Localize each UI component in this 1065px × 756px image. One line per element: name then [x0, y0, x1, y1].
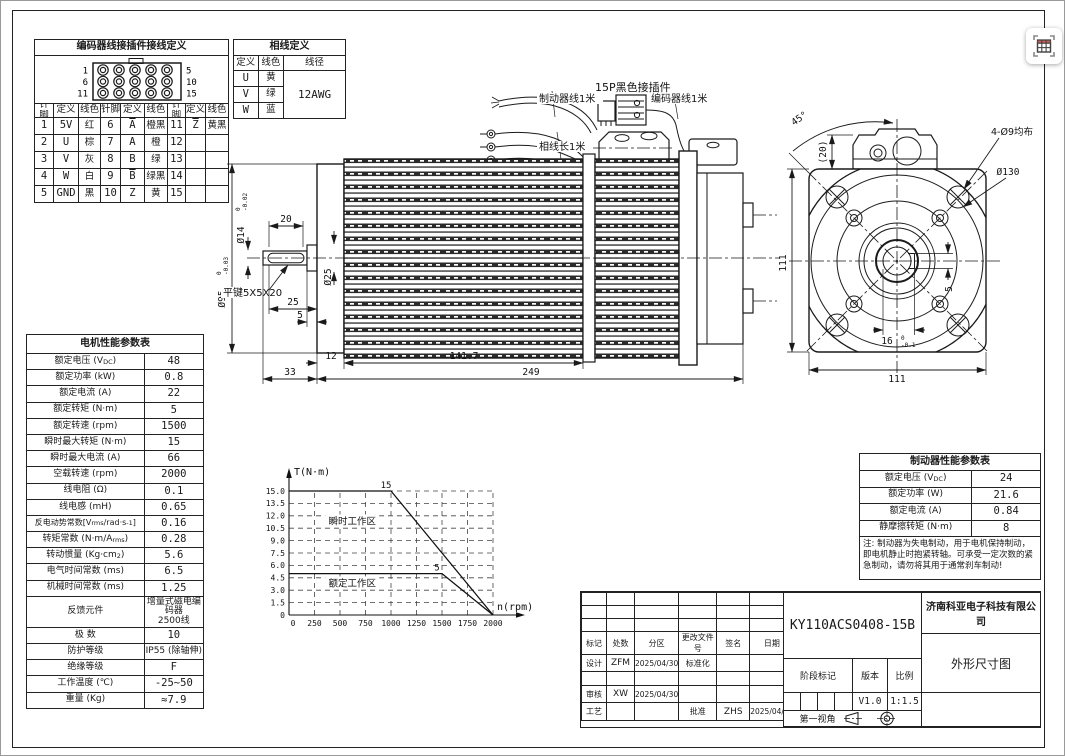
param-value: 8: [972, 521, 1040, 537]
pin-cell: 10: [101, 186, 120, 202]
pin-cell: Z: [121, 186, 144, 202]
param-value: 22: [145, 386, 203, 401]
pin-cell: 5: [35, 186, 53, 202]
brake-performance-table: 制动器性能参数表 额定电压 (VDC) 24 额定功率 (W) 21.6 额定电…: [859, 453, 1041, 580]
param-value: ≈7.9: [145, 693, 203, 708]
param-value: 1.25: [145, 581, 203, 596]
svg-text:15: 15: [186, 90, 197, 100]
pin-cell: 3: [35, 152, 53, 168]
param-label: 反馈元件: [27, 597, 144, 627]
pin-cell: 绿黑: [145, 169, 167, 185]
scale-label: 比例: [887, 658, 922, 693]
pin-cell: 9: [101, 169, 120, 185]
stage-cell: [783, 692, 801, 711]
param-label: 线电阻 (Ω): [27, 484, 144, 499]
param-label: 机械时间常数 (ms): [27, 581, 144, 596]
rev-col-header: 标记: [582, 632, 607, 655]
pin-cell: 黄: [145, 186, 167, 202]
pin-cell: 1: [35, 118, 53, 134]
projection-row: 第一视角: [783, 710, 922, 727]
design-date: 2025/04/30: [635, 655, 679, 672]
encoder-wire-label: 编码器线1米: [651, 92, 707, 105]
svg-text:11: 11: [77, 90, 88, 100]
col-header: 线径: [284, 56, 345, 70]
pin-cell: GND: [54, 186, 78, 202]
svg-text:0: 0: [901, 335, 905, 342]
col-header: 线色: [79, 104, 100, 117]
svg-text:0: 0: [235, 207, 242, 211]
phase-table-title: 相线定义: [234, 40, 345, 55]
param-label: 瞬时最大电流 (A): [27, 451, 144, 466]
svg-text:n(rpm): n(rpm): [497, 602, 533, 613]
svg-text:5: 5: [944, 286, 955, 292]
svg-text:1500: 1500: [432, 619, 451, 628]
empty-cell: [921, 692, 1041, 727]
brake-wire-label: 制动器线1米: [539, 92, 595, 105]
svg-text:-0.03: -0.03: [223, 257, 230, 275]
rev-col-header: 分区: [635, 632, 679, 655]
param-label: 绝缘等级: [27, 660, 144, 675]
rev-col-header: 签名: [717, 632, 750, 655]
svg-text:45°: 45°: [789, 110, 809, 129]
param-value: 0.16: [145, 516, 203, 531]
pin-cell: U: [54, 135, 78, 151]
pin-cell: 黑: [79, 186, 100, 202]
motor-body: [247, 132, 779, 365]
pin-cell: 12: [168, 135, 185, 151]
svg-text:33: 33: [284, 367, 295, 378]
drawing-title: 外形尺寸图: [921, 633, 1041, 693]
pin-cell: [186, 186, 205, 202]
svg-text:13.5: 13.5: [266, 499, 285, 508]
svg-text:5: 5: [186, 67, 191, 77]
svg-text:16: 16: [881, 336, 893, 347]
pin-cell: 绿: [145, 152, 167, 168]
param-label: 额定功率 (kW): [27, 370, 144, 385]
approve-label: 批准: [679, 703, 717, 721]
svg-text:6.0: 6.0: [271, 561, 286, 570]
param-label: 重量 (Kg): [27, 693, 144, 708]
svg-text:15.0: 15.0: [266, 487, 285, 496]
col-header: 线色: [259, 56, 284, 70]
param-label: 防护等级: [27, 644, 144, 659]
pin-cell: 7: [101, 135, 120, 151]
audit-date: 2025/04/30: [635, 686, 679, 703]
param-value: IP55 (除轴伸): [145, 644, 203, 659]
svg-text:750: 750: [358, 619, 373, 628]
col-header: 定义: [121, 104, 144, 117]
motor-performance-table: 电机性能参数表 额定电压 (VDC) 48 额定功率 (kW) 0.8 额定电流…: [26, 334, 204, 709]
table-capture-icon: [1032, 34, 1056, 58]
param-value: 0.1: [145, 484, 203, 499]
param-label: 工作温度 (℃): [27, 676, 144, 691]
audit-sign: XW: [607, 686, 635, 703]
rev-col-header: 更改文件号: [679, 632, 717, 655]
param-label: 空载转速 (rpm): [27, 467, 144, 482]
param-label: 线电感 (mH): [27, 500, 144, 515]
stage-cell: [834, 692, 853, 711]
pin-cell: 4: [35, 169, 53, 185]
pin-cell: 2: [35, 135, 53, 151]
svg-text:Ø14: Ø14: [236, 226, 247, 243]
svg-text:(20): (20): [818, 141, 829, 164]
svg-text:111: 111: [888, 374, 905, 385]
svg-text:瞬时工作区: 瞬时工作区: [328, 515, 376, 527]
pin-cell: A: [121, 118, 144, 134]
svg-text:0: 0: [291, 619, 296, 628]
pin-cell: [186, 169, 205, 185]
pin-cell: 6: [101, 118, 120, 134]
pin-cell: B: [121, 169, 144, 185]
revision-table: 标记 处数 分区 更改文件号 签名 日期 设计 ZFM 2025/04/30 标…: [581, 592, 794, 721]
approve-sign: ZHS: [717, 703, 750, 721]
svg-text:-0.02: -0.02: [242, 193, 249, 211]
encoder-wiring-table: 编码器线接插件接线定义 1 6 11 5 10 15 针脚 定义 线色 针脚 定…: [34, 39, 229, 203]
pin-cell: Z: [186, 118, 205, 134]
projection-label: 第一视角: [799, 712, 835, 725]
col-header: 定义: [186, 104, 205, 117]
version-value: V1.0: [852, 692, 888, 711]
param-value: 6.5: [145, 564, 203, 579]
first-angle-projection-icon: [844, 711, 906, 726]
svg-text:249: 249: [522, 367, 539, 378]
pin-cell: 橙: [145, 135, 167, 151]
param-value: 0.8: [145, 370, 203, 385]
svg-text:5: 5: [434, 564, 439, 574]
svg-text:Ø25: Ø25: [323, 268, 334, 285]
rev-col-header: 处数: [607, 632, 635, 655]
hole-callout: 4-Ø9均布: [991, 126, 1033, 138]
motor-side-view: 制动器线1米 15P黑色接插件 编码器线1米 相线长1米 Ø95 0 -0.03…: [211, 79, 783, 391]
pin-cell: 橙黑: [145, 118, 167, 134]
model-number: KY110ACS0408-15B: [783, 592, 922, 659]
brake-table-title: 制动器性能参数表: [860, 454, 1040, 470]
svg-text:5: 5: [297, 310, 303, 321]
svg-text:额定工作区: 额定工作区: [328, 577, 376, 589]
svg-text:1250: 1250: [407, 619, 426, 628]
pin-cell: 14: [168, 169, 185, 185]
svg-text:12.0: 12.0: [266, 512, 285, 521]
param-value: 1500: [145, 419, 203, 434]
pin-cell: 5V: [54, 118, 78, 134]
param-value: 48: [145, 354, 203, 369]
svg-text:3.0: 3.0: [271, 586, 286, 595]
motor-front-view: 45° (20) 4-Ø9均布 Ø130 111 111 5: [769, 97, 1065, 393]
param-label: 转矩常数 (N·m/Arms): [27, 532, 144, 547]
encoder-connector-cell: 1 6 11 5 10 15: [35, 56, 228, 103]
param-value: 0.84: [972, 504, 1040, 520]
svg-text:2000: 2000: [483, 619, 502, 628]
svg-text:4.5: 4.5: [271, 574, 286, 583]
pin-cell: 11: [168, 118, 185, 134]
version-label: 版本: [852, 658, 888, 693]
brake-note: 注: 制动器为失电制动，用于电机保持制动，即电机静止时抱紧转轴。可承受一定次数的…: [860, 537, 1040, 579]
pin-cell: 棕: [79, 135, 100, 151]
design-label: 设计: [582, 655, 607, 672]
col-header: 定义: [234, 56, 258, 70]
svg-text:6: 6: [83, 78, 88, 88]
param-value: 5: [145, 403, 203, 418]
svg-text:15: 15: [381, 481, 392, 491]
col-header: 针脚: [168, 104, 185, 117]
param-label: 极 数: [27, 628, 144, 643]
param-label: 额定电压 (VDC): [860, 471, 971, 487]
svg-text:111: 111: [778, 254, 789, 271]
param-value: 增量式磁电编码器2500线: [145, 597, 203, 627]
encoder-table-title: 编码器线接插件接线定义: [35, 40, 228, 55]
param-value: F: [145, 660, 203, 675]
svg-text:12: 12: [325, 351, 336, 362]
param-label: 电气时间常数 (ms): [27, 564, 144, 579]
svg-text:20: 20: [280, 214, 292, 225]
audit-label: 审核: [582, 686, 607, 703]
pin-cell: B: [121, 152, 144, 168]
title-block: 标记 处数 分区 更改文件号 签名 日期 设计 ZFM 2025/04/30 标…: [580, 591, 1041, 728]
col-header: 针脚: [101, 104, 120, 117]
svg-text:9.0: 9.0: [271, 536, 286, 545]
param-value: 24: [972, 471, 1040, 487]
param-value: 0.28: [145, 532, 203, 547]
param-label: 额定电流 (A): [860, 504, 971, 520]
torque-speed-chart: 01.53.04.56.07.59.010.512.013.515.002505…: [253, 453, 553, 653]
svg-text:10.5: 10.5: [266, 524, 285, 533]
param-label: 额定转矩 (N·m): [27, 403, 144, 418]
pin-cell: 灰: [79, 152, 100, 168]
param-value: 15: [145, 435, 203, 450]
param-label: 额定电压 (VDC): [27, 354, 144, 369]
design-sign: ZFM: [607, 655, 635, 672]
param-label: 瞬时最大转矩 (N·m): [27, 435, 144, 450]
svg-text:0: 0: [216, 271, 223, 275]
svg-text:1.5: 1.5: [271, 598, 286, 607]
pin-cell: A: [121, 135, 144, 151]
svg-text:T(N·m): T(N·m): [294, 467, 330, 478]
pin-cell: 白: [79, 169, 100, 185]
col-header: 针脚: [35, 104, 53, 117]
param-value: 21.6: [972, 488, 1040, 504]
param-value: 2000: [145, 467, 203, 482]
connector-label: 15P黑色接插件: [595, 80, 671, 94]
param-value: -25~50: [145, 676, 203, 691]
table-capture-button[interactable]: [1026, 28, 1062, 64]
drawing-sheet: 编码器线接插件接线定义 1 6 11 5 10 15 针脚 定义 线色 针脚 定…: [0, 0, 1065, 756]
svg-text:-0.1: -0.1: [901, 342, 916, 349]
param-value: 5.6: [145, 548, 203, 563]
pin-cell: [186, 152, 205, 168]
pin-cell: 8: [101, 152, 120, 168]
svg-text:Ø130: Ø130: [997, 167, 1020, 178]
pin-cell: 15: [168, 186, 185, 202]
param-label: 额定功率 (W): [860, 488, 971, 504]
svg-text:1750: 1750: [458, 619, 477, 628]
param-label: 反电动势常数[Vrms/rad·s-1]: [27, 516, 144, 531]
svg-text:7.5: 7.5: [271, 549, 286, 558]
phase-wire-label: 相线长1米: [539, 140, 585, 153]
pin-cell: [186, 135, 205, 151]
param-value: 66: [145, 451, 203, 466]
scale-value: 1:1.5: [887, 692, 922, 711]
svg-text:250: 250: [307, 619, 322, 628]
param-label: 额定电流 (A): [27, 386, 144, 401]
company-name: 济南科亚电子科技有限公司: [921, 592, 1041, 634]
param-label: 转动惯量 (Kg·cm2): [27, 548, 144, 563]
svg-text:500: 500: [333, 619, 348, 628]
standard-label: 标准化: [679, 655, 717, 672]
stage-label: 阶段标记: [783, 658, 853, 693]
param-label: 额定转速 (rpm): [27, 419, 144, 434]
pin-cell: 13: [168, 152, 185, 168]
pin-cell: W: [54, 169, 78, 185]
param-label: 静摩擦转矩 (N·m): [860, 521, 971, 537]
col-header: 线色: [145, 104, 167, 117]
svg-text:1: 1: [83, 67, 88, 77]
svg-text:1000: 1000: [381, 619, 400, 628]
encoder-connector-diagram: 1 6 11 5 10 15: [36, 57, 227, 102]
pin-cell: V: [54, 152, 78, 168]
svg-text:25: 25: [287, 297, 298, 308]
pin-cell: 红: [79, 118, 100, 134]
param-value: 10: [145, 628, 203, 643]
col-header: 定义: [54, 104, 78, 117]
stage-cell: [817, 692, 835, 711]
param-value: 0.65: [145, 500, 203, 515]
stage-cell: [800, 692, 818, 711]
motor-table-title: 电机性能参数表: [27, 335, 203, 353]
svg-text:141.7: 141.7: [450, 351, 479, 362]
svg-text:0: 0: [280, 611, 285, 620]
svg-text:10: 10: [186, 78, 197, 88]
process-label: 工艺: [582, 703, 607, 721]
key-spec-label: 平键5X5X20: [223, 286, 282, 299]
